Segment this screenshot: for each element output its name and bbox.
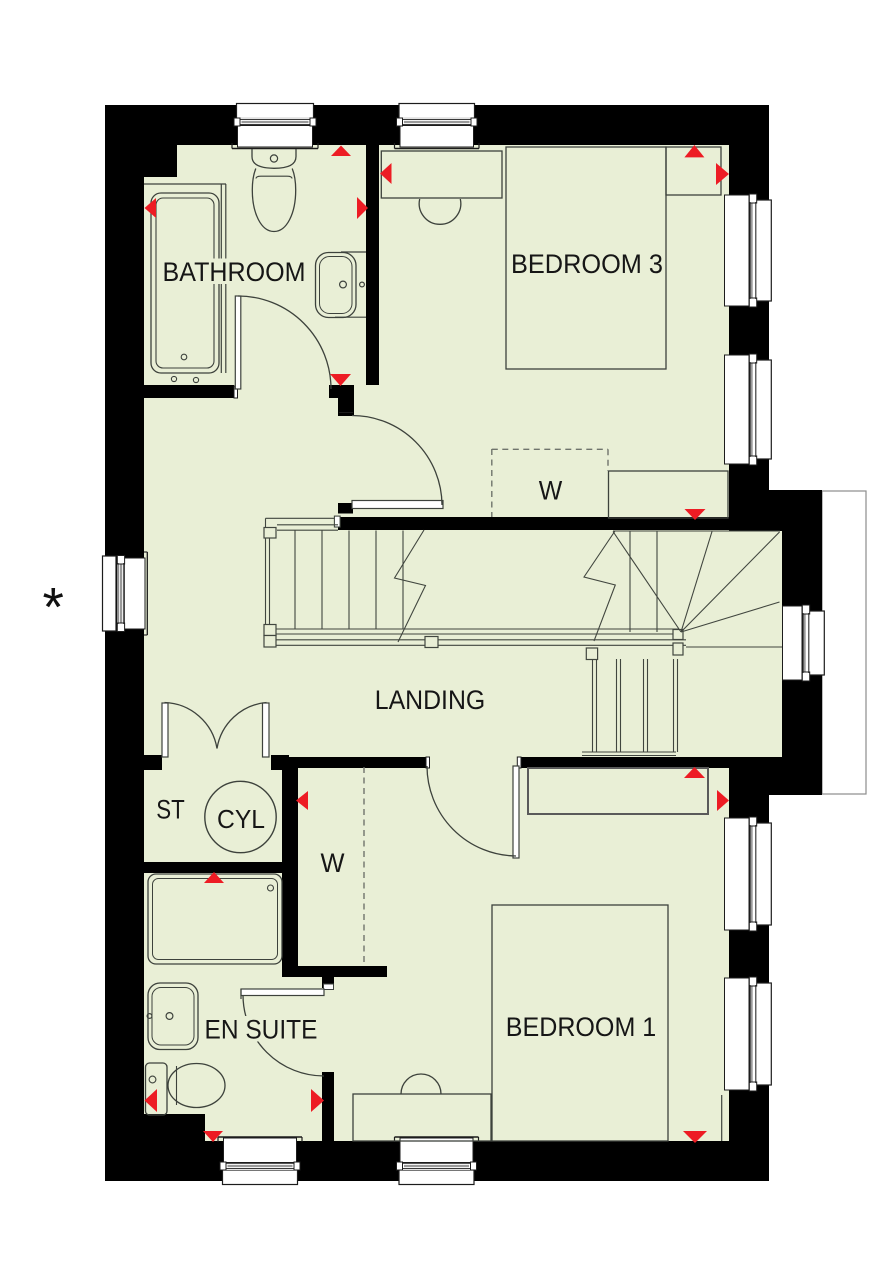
svg-text:ST: ST [156,795,185,825]
svg-text:BATHROOM: BATHROOM [163,257,306,287]
svg-text:W: W [539,476,563,506]
svg-text:EN SUITE: EN SUITE [205,1015,318,1045]
svg-text:CYL: CYL [217,804,265,834]
svg-text:LANDING: LANDING [375,685,486,715]
svg-text:W: W [321,848,345,878]
svg-text:BEDROOM 1: BEDROOM 1 [506,1012,657,1042]
svg-text:BEDROOM 3: BEDROOM 3 [511,249,663,279]
svg-text:*: * [43,576,64,638]
